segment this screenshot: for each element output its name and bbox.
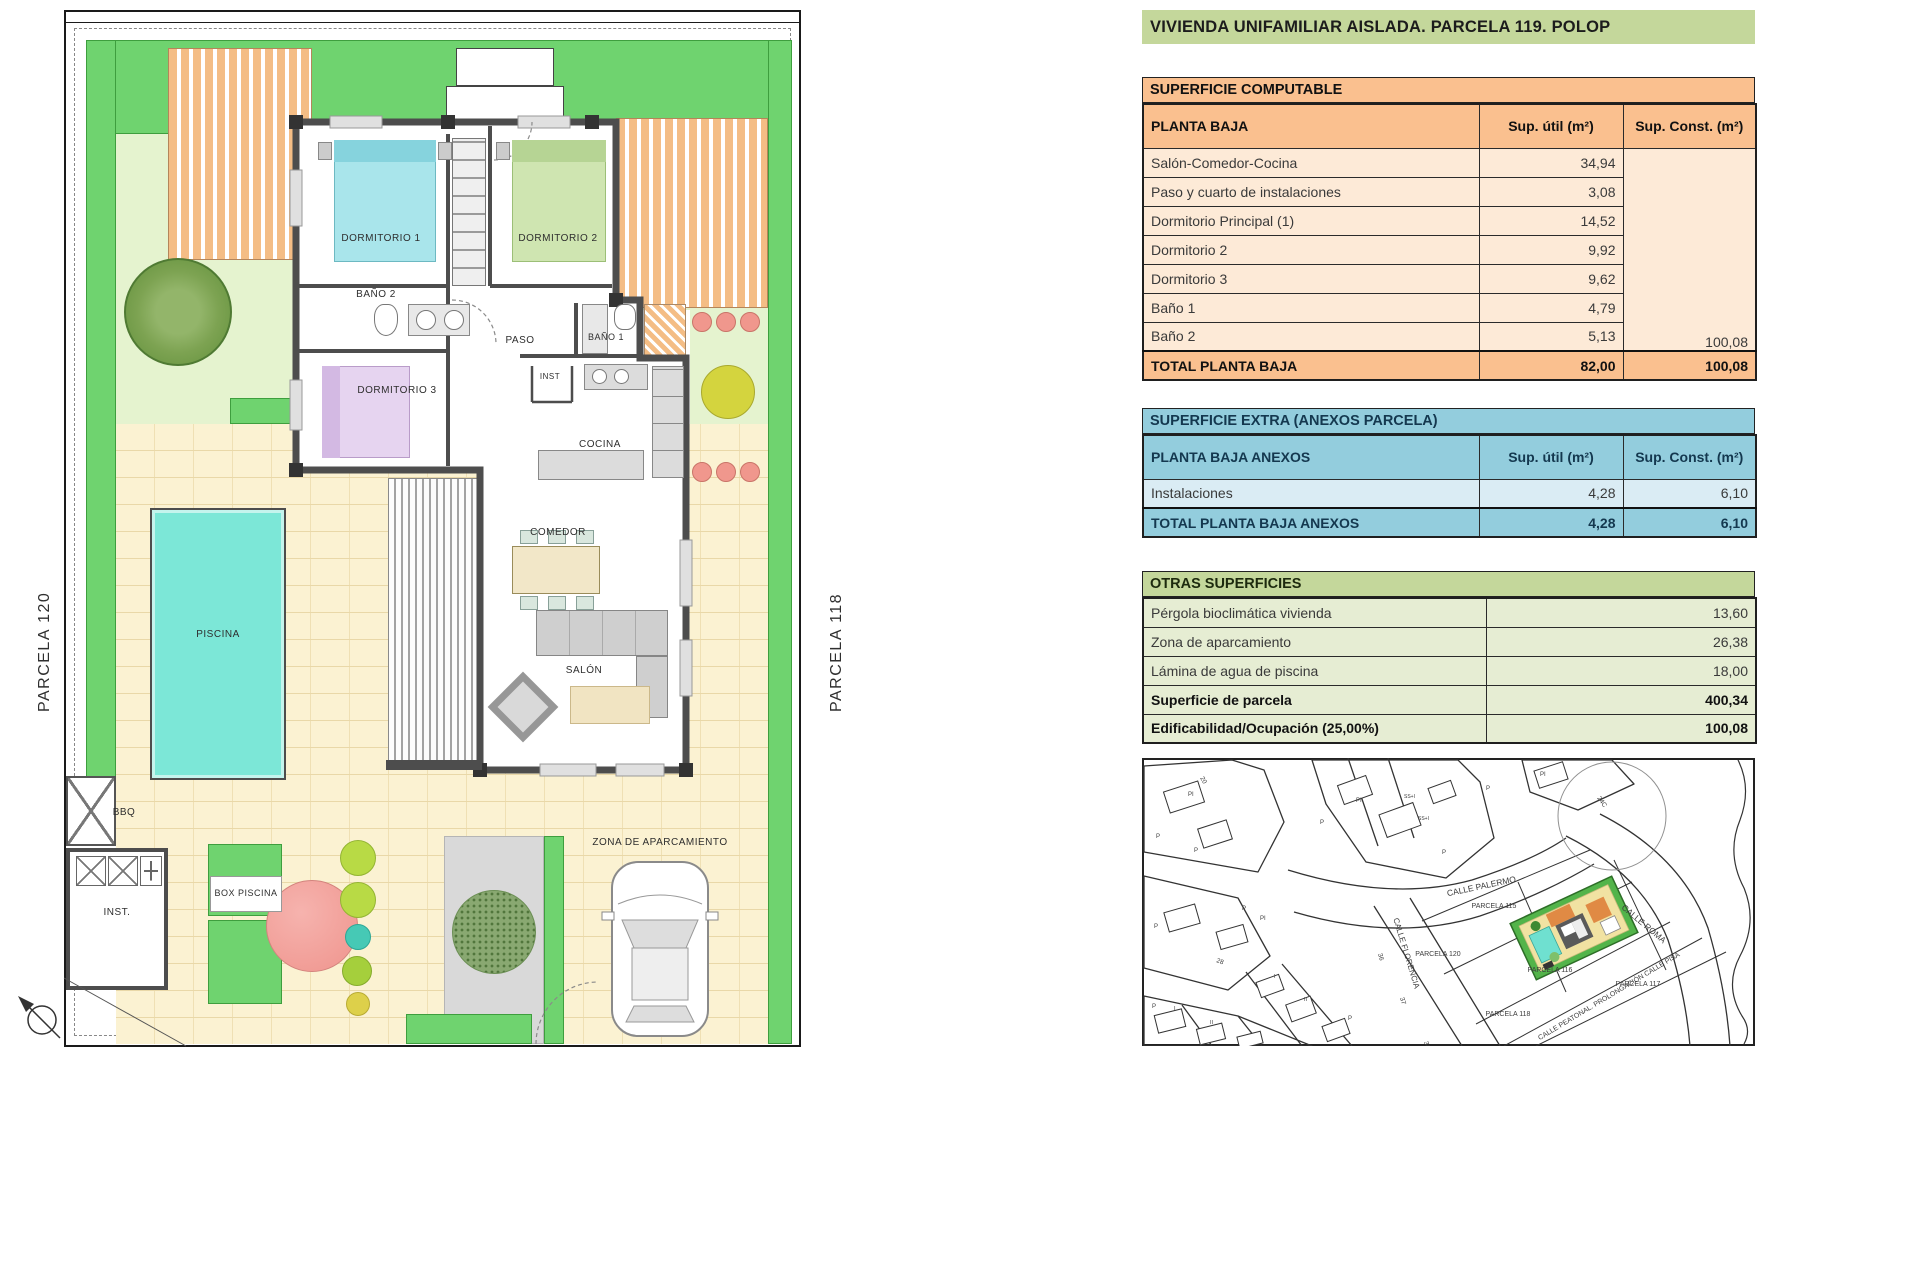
label-parcela-118: PARCELA 118 bbox=[828, 593, 846, 712]
salmon-plant-1 bbox=[692, 312, 712, 332]
section-otras-superficies: OTRAS SUPERFICIES bbox=[1142, 571, 1755, 597]
inst-equipment-2 bbox=[108, 856, 138, 886]
parcel-label-118: PARCELA 118 bbox=[1486, 1011, 1531, 1018]
label-parcela-120: PARCELA 120 bbox=[36, 592, 54, 712]
hedge-right bbox=[768, 40, 792, 1044]
house-code: P bbox=[1242, 906, 1246, 912]
room-label-dormitorio3: DORMITORIO 3 bbox=[336, 384, 458, 397]
yellow-tree-circle bbox=[701, 365, 755, 419]
pool bbox=[150, 508, 286, 780]
column-header: PLANTA BAJA ANEXOS bbox=[1143, 435, 1479, 479]
chair bbox=[576, 596, 594, 610]
floor-plan: DORMITORIO 1 DORMITORIO 2 BAÑO 2 DORMITO… bbox=[0, 0, 935, 1280]
house-code: PI bbox=[1540, 772, 1546, 778]
house-code: SS+I bbox=[1404, 794, 1415, 800]
room-label-zona-aparcamiento: ZONA DE APARCAMIENTO bbox=[576, 836, 744, 849]
hedge-strip-driveway bbox=[544, 836, 564, 1044]
table-row: Salón-Comedor-Cocina 34,94 100,08 bbox=[1143, 148, 1756, 177]
lime-plant-1 bbox=[340, 840, 376, 876]
slatted-deck bbox=[388, 478, 480, 766]
bath1-shower bbox=[582, 304, 608, 354]
salmon-plant-5 bbox=[716, 462, 736, 482]
salmon-plant-2 bbox=[716, 312, 736, 332]
inst-equipment-1 bbox=[76, 856, 106, 886]
house-code: P bbox=[1348, 1016, 1352, 1022]
map-border bbox=[1143, 759, 1754, 1045]
house-code: P bbox=[1320, 820, 1324, 826]
table-total-row: TOTAL PLANTA BAJA 82,00 100,08 bbox=[1143, 351, 1756, 380]
pergola-top-right bbox=[616, 118, 768, 308]
bath1-toilet bbox=[614, 304, 636, 330]
chair bbox=[520, 596, 538, 610]
house-code: PI bbox=[1260, 916, 1266, 922]
parcel-label-117: PARCELA 117 bbox=[1616, 981, 1661, 988]
column-header: Sup. Const. (m²) bbox=[1623, 435, 1756, 479]
house-code: P bbox=[1154, 924, 1158, 930]
wardrobe bbox=[452, 138, 486, 286]
room-label-comedor: COMEDOR bbox=[516, 526, 600, 539]
room-label-bano2: BAÑO 2 bbox=[330, 288, 422, 301]
room-label-salon: SALÓN bbox=[544, 664, 624, 677]
green-bottom-strip bbox=[406, 1014, 532, 1044]
house-code: P bbox=[1442, 850, 1446, 856]
merged-const-cell: 100,08 bbox=[1623, 148, 1756, 351]
hedge-under-tree bbox=[230, 398, 312, 424]
pergola-top-left bbox=[168, 48, 312, 260]
lime-plant-3 bbox=[342, 956, 372, 986]
bath2-toilet bbox=[374, 304, 398, 336]
nightstand-3 bbox=[496, 142, 510, 160]
room-label-bbq: BBQ bbox=[100, 806, 148, 819]
house-code: P bbox=[1486, 786, 1490, 792]
stippled-tree-circle bbox=[452, 890, 536, 974]
house-code: II bbox=[1304, 997, 1308, 1003]
pillow-dormitorio3 bbox=[322, 366, 340, 458]
column-header: PLANTA BAJA bbox=[1143, 104, 1479, 148]
inst-equipment-3 bbox=[140, 856, 162, 886]
page-title: VIVIENDA UNIFAMILIAR AISLADA. PARCELA 11… bbox=[1142, 10, 1755, 44]
house-code: P bbox=[1152, 1004, 1156, 1010]
room-label-dormitorio2: DORMITORIO 2 bbox=[498, 232, 618, 245]
house-code: PI bbox=[1356, 798, 1362, 804]
house-code: PI bbox=[1188, 792, 1194, 798]
dining-table bbox=[512, 546, 600, 594]
table-row: Zona de aparcamiento26,38 bbox=[1143, 627, 1756, 656]
parcel-label-120: PARCELA 120 bbox=[1415, 951, 1461, 958]
site-map: CALLE PALERMO CALLE ROMA CALLE FLORENCIA… bbox=[1142, 758, 1755, 1046]
house-code: II bbox=[1210, 1020, 1214, 1026]
hatched-planter bbox=[644, 304, 686, 356]
house-code: SS+I bbox=[1418, 816, 1429, 822]
pillow-dormitorio2 bbox=[512, 140, 606, 162]
sofa bbox=[536, 610, 668, 656]
table-row: Superficie de parcela400,34 bbox=[1143, 685, 1756, 714]
bath2-sink-2 bbox=[444, 310, 464, 330]
table-row: Pérgola bioclimática vivienda13,60 bbox=[1143, 598, 1756, 627]
kitchen-sink-1 bbox=[592, 369, 607, 384]
room-label-inst: INST bbox=[526, 372, 574, 382]
parcel-label-116: PARCELA 116 bbox=[1528, 967, 1573, 974]
parcel-label-115: PARCELA 115 bbox=[1472, 903, 1517, 910]
house-code: P bbox=[1156, 834, 1160, 840]
table-superficie-extra: PLANTA BAJA ANEXOS Sup. útil (m²) Sup. C… bbox=[1142, 434, 1757, 538]
entry-canopy-outer bbox=[456, 48, 554, 86]
pillow-dormitorio1 bbox=[334, 140, 436, 162]
room-label-dormitorio1: DORMITORIO 1 bbox=[320, 232, 442, 245]
kitchen-appliance-column bbox=[652, 366, 684, 478]
kitchen-island bbox=[538, 450, 644, 480]
table-row: Instalaciones 4,28 6,10 bbox=[1143, 479, 1756, 508]
column-header: Sup. útil (m²) bbox=[1479, 435, 1623, 479]
column-header: Sup. útil (m²) bbox=[1479, 104, 1623, 148]
sheet: DORMITORIO 1 DORMITORIO 2 BAÑO 2 DORMITO… bbox=[0, 0, 1920, 1280]
plan-frame-inner-line bbox=[66, 22, 799, 23]
bath2-sink-1 bbox=[416, 310, 436, 330]
room-label-box-piscina: BOX PISCINA bbox=[210, 876, 282, 912]
salmon-plant-4 bbox=[692, 462, 712, 482]
hedge-left bbox=[86, 40, 116, 796]
table-total-row: TOTAL PLANTA BAJA ANEXOS 4,28 6,10 bbox=[1143, 508, 1756, 537]
column-header: Sup. Const. (m²) bbox=[1623, 104, 1756, 148]
house-code: P bbox=[1194, 848, 1198, 854]
salmon-plant-6 bbox=[740, 462, 760, 482]
rug bbox=[570, 686, 650, 724]
room-label-cocina: COCINA bbox=[560, 438, 640, 451]
table-superficie-computable: PLANTA BAJA Sup. útil (m²) Sup. Const. (… bbox=[1142, 103, 1757, 381]
table-otras-superficies: Pérgola bioclimática vivienda13,60 Zona … bbox=[1142, 597, 1757, 744]
nightstand-1 bbox=[318, 142, 332, 160]
room-label-paso: PASO bbox=[488, 334, 552, 347]
yellow-plant bbox=[346, 992, 370, 1016]
table-row: Lámina de agua de piscina18,00 bbox=[1143, 656, 1756, 685]
table-row: Edificabilidad/Ocupación (25,00%)100,08 bbox=[1143, 714, 1756, 743]
north-arrow-icon bbox=[18, 996, 60, 1038]
section-superficie-computable: SUPERFICIE COMPUTABLE bbox=[1142, 77, 1755, 103]
entry-canopy-inner bbox=[446, 86, 564, 124]
nightstand-2 bbox=[438, 142, 452, 160]
tree-icon bbox=[124, 258, 232, 366]
room-label-inst-exterior: INST. bbox=[70, 906, 164, 919]
room-label-bano1: BAÑO 1 bbox=[574, 332, 638, 344]
room-label-piscina: PISCINA bbox=[150, 628, 286, 641]
section-superficie-extra: SUPERFICIE EXTRA (ANEXOS PARCELA) bbox=[1142, 408, 1755, 434]
chair bbox=[548, 596, 566, 610]
summary-panel: VIVIENDA UNIFAMILIAR AISLADA. PARCELA 11… bbox=[1142, 10, 1755, 744]
teal-plant bbox=[345, 924, 371, 950]
kitchen-sink-2 bbox=[614, 369, 629, 384]
car-icon bbox=[598, 856, 722, 1044]
salmon-plant-3 bbox=[740, 312, 760, 332]
lime-plant-2 bbox=[340, 882, 376, 918]
address-number: 38 bbox=[1422, 1041, 1431, 1046]
